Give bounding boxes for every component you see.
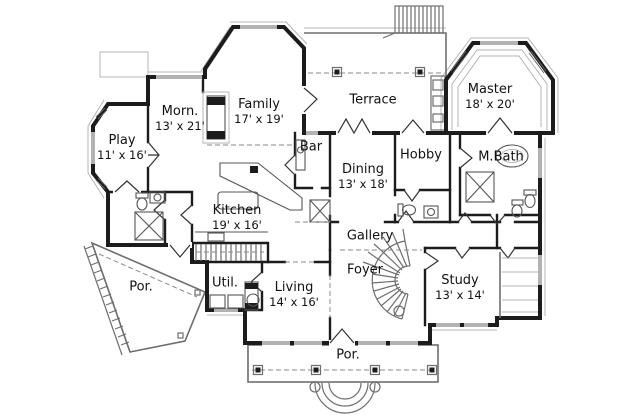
floor-plan: Play 11' x 16' Morn. 13' x 21' Family 17… [0, 0, 620, 415]
room-name: Bar [300, 141, 322, 156]
room-name: Living [269, 281, 319, 296]
room-label-living: Living 14' x 16' [269, 281, 319, 309]
room-label-hobby: Hobby [400, 149, 442, 164]
room-dims: 13' x 18' [338, 178, 388, 191]
room-name: Morn. [155, 105, 205, 120]
terrace-structure [304, 33, 446, 130]
room-label-porch-left: Por. [129, 281, 153, 296]
room-label-morn: Morn. 13' x 21' [155, 105, 205, 133]
room-name: Foyer [347, 264, 383, 279]
room-name: Hobby [400, 149, 442, 164]
room-name: Por. [129, 281, 153, 296]
sill-lines [88, 22, 558, 330]
floor-plan-drawing [0, 0, 620, 415]
room-dims: 14' x 16' [269, 296, 319, 309]
room-label-bar: Bar [300, 141, 322, 156]
room-label-kitchen: Kitchen 19' x 16' [212, 204, 262, 232]
room-label-study: Study 13' x 14' [435, 274, 485, 302]
bath-fixtures [135, 145, 536, 240]
room-label-terrace: Terrace [349, 94, 396, 109]
room-label-gallery: Gallery [347, 230, 393, 245]
room-label-porch-bottom: Por. [336, 349, 360, 364]
room-label-family: Family 17' x 19' [234, 98, 284, 126]
room-label-util: Util. [212, 277, 238, 292]
room-name: Gallery [347, 230, 393, 245]
room-label-master: Master 18' x 20' [465, 83, 515, 111]
fireplace-family [203, 92, 229, 143]
room-dims: 19' x 16' [212, 219, 262, 232]
room-name: Study [435, 274, 485, 289]
room-name: Terrace [349, 94, 396, 109]
room-name: Play [97, 134, 147, 149]
utility-appliances [210, 294, 259, 308]
front-steps [310, 382, 380, 413]
room-name: Por. [336, 349, 360, 364]
terrace-columns [333, 68, 425, 77]
main-stair [196, 244, 264, 261]
room-label-foyer: Foyer [347, 264, 383, 279]
room-name: Family [234, 98, 284, 113]
room-dims: 18' x 20' [465, 98, 515, 111]
side-porch [84, 243, 205, 355]
room-name: Master [465, 83, 515, 98]
room-dims: 17' x 19' [234, 113, 284, 126]
room-label-play: Play 11' x 16' [97, 134, 147, 162]
room-label-dining: Dining 13' x 18' [338, 163, 388, 191]
room-dims: 13' x 21' [155, 120, 205, 133]
room-name: Dining [338, 163, 388, 178]
closet-shelves [502, 258, 538, 312]
room-label-mbath: M.Bath [478, 151, 524, 166]
room-name: M.Bath [478, 151, 524, 166]
room-dims: 11' x 16' [97, 149, 147, 162]
room-name: Kitchen [212, 204, 262, 219]
room-dims: 13' x 14' [435, 289, 485, 302]
room-name: Util. [212, 277, 238, 292]
